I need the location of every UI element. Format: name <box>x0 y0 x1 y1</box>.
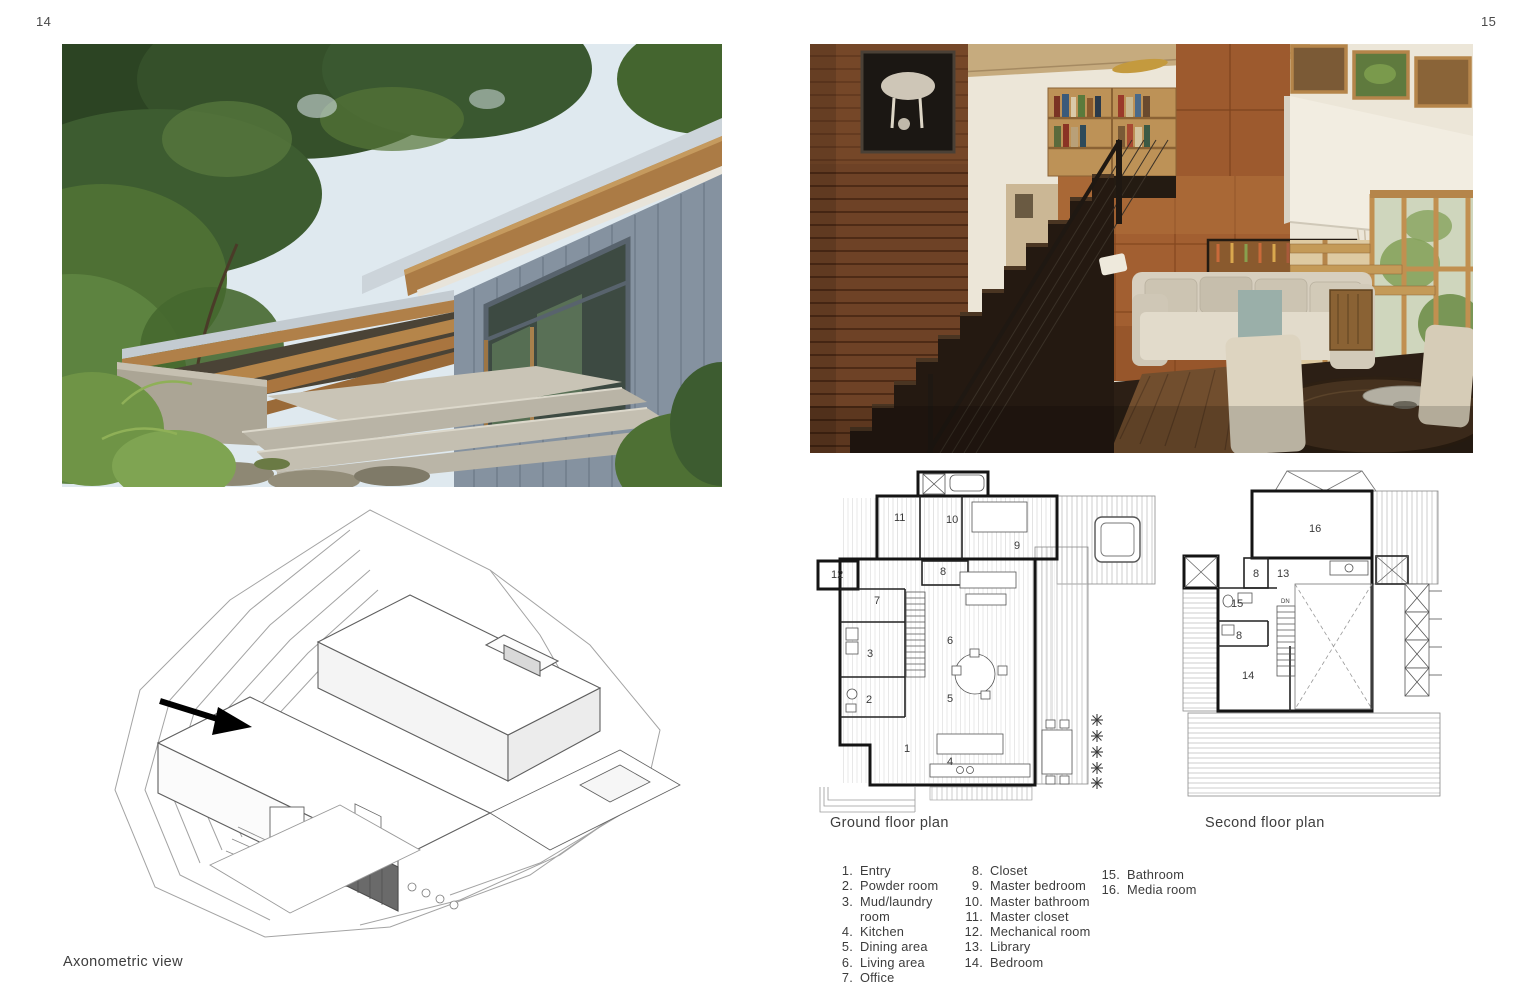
svg-text:13: 13 <box>1277 568 1289 580</box>
stair-down <box>1277 606 1295 676</box>
exterior-photo <box>62 44 722 487</box>
room-legend: 1.Entry 2.Powder room 3.Mud/laundry room… <box>833 863 1197 985</box>
svg-text:16: 16 <box>1309 523 1321 535</box>
legend-item: 9.Master bedroom <box>963 878 1100 893</box>
svg-text:5: 5 <box>947 693 953 705</box>
legend-item: 13.Library <box>963 939 1100 954</box>
legend-item: 3.Mud/laundry room <box>833 894 963 925</box>
kitchen-island <box>937 734 1003 754</box>
svg-text:2: 2 <box>866 694 872 706</box>
svg-text:14: 14 <box>1242 670 1254 682</box>
legend-column-3: 15.Bathroom 16.Media room <box>1100 867 1197 898</box>
svg-text:DN: DN <box>1281 599 1290 605</box>
svg-text:15: 15 <box>1231 598 1243 610</box>
legend-item: 15.Bathroom <box>1100 867 1197 882</box>
svg-text:9: 9 <box>1014 540 1020 552</box>
open-to-below <box>1295 584 1372 709</box>
plant-icons <box>1091 714 1103 789</box>
ground-floor-caption: Ground floor plan <box>830 815 949 831</box>
svg-text:8: 8 <box>1253 568 1259 580</box>
svg-text:8: 8 <box>1236 630 1242 642</box>
svg-text:10: 10 <box>946 514 958 526</box>
closet-units <box>1405 584 1442 696</box>
ground-floor-plan: 11 10 9 12 8 7 6 3 2 5 1 4 <box>810 462 1170 814</box>
roof-deck <box>1188 713 1440 796</box>
svg-text:4: 4 <box>947 756 953 768</box>
second-floor-caption: Second floor plan <box>1205 815 1325 831</box>
wall-artwork <box>862 52 954 152</box>
axonometric-caption: Axonometric view <box>63 954 183 970</box>
svg-text:11: 11 <box>894 512 905 524</box>
legend-item: 4.Kitchen <box>833 924 963 939</box>
interior-photo <box>810 44 1473 453</box>
legend-item: 16.Media room <box>1100 882 1197 897</box>
svg-text:1: 1 <box>904 743 910 755</box>
legend-item: 11.Master closet <box>963 909 1100 924</box>
legend-item: 8.Closet <box>963 863 1100 878</box>
legend-item: 6.Living area <box>833 955 963 970</box>
book-spread: 14 15 <box>0 0 1534 997</box>
exterior-photo-illustration <box>62 44 722 487</box>
legend-item: 1.Entry <box>833 863 963 878</box>
svg-text:8: 8 <box>940 566 946 578</box>
second-floor-plan: 16 8 13 15 8 14 DN <box>1180 461 1460 816</box>
page-number-left: 14 <box>36 14 51 29</box>
legend-item: 7.Office <box>833 970 963 985</box>
axonometric-drawing <box>60 495 710 940</box>
legend-item: 2.Powder room <box>833 878 963 893</box>
interior-photo-illustration <box>810 44 1473 453</box>
roof-monitor <box>1275 471 1376 491</box>
svg-text:3: 3 <box>867 648 873 660</box>
legend-item: 10.Master bathroom <box>963 894 1100 909</box>
svg-text:7: 7 <box>874 595 880 607</box>
legend-item: 12.Mechanical room <box>963 924 1100 939</box>
legend-column-2: 8.Closet 9.Master bedroom 10.Master bath… <box>963 863 1100 970</box>
svg-text:6: 6 <box>947 635 953 647</box>
svg-text:12: 12 <box>831 569 843 581</box>
legend-item: 14.Bedroom <box>963 955 1100 970</box>
legend-column-1: 1.Entry 2.Powder room 3.Mud/laundry room… <box>833 863 963 985</box>
legend-item: 5.Dining area <box>833 939 963 954</box>
page-number-right: 15 <box>1481 14 1496 29</box>
